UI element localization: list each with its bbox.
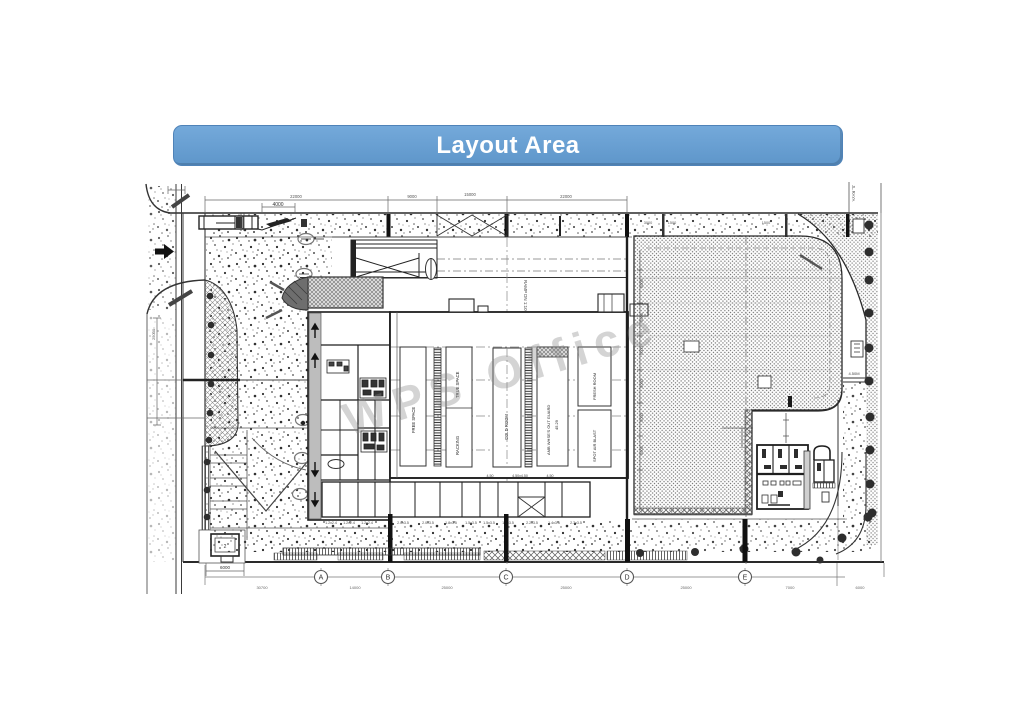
svg-text:25000: 25000 — [441, 585, 453, 590]
svg-text:4000: 4000 — [272, 202, 283, 208]
svg-text:9000: 9000 — [407, 194, 417, 199]
svg-text:2.0x3.5: 2.0x3.5 — [422, 521, 434, 525]
svg-text:SPOT AIR BLAST: SPOT AIR BLAST — [592, 429, 597, 462]
svg-text:1500: 1500 — [668, 221, 676, 225]
svg-text:6000: 6000 — [220, 565, 231, 570]
svg-text:25000: 25000 — [680, 585, 692, 590]
svg-text:22000: 22000 — [560, 194, 572, 199]
svg-text:4.50x4.50: 4.50x4.50 — [512, 474, 528, 478]
svg-text:5000: 5000 — [639, 412, 644, 422]
svg-text:6000: 6000 — [856, 585, 866, 590]
svg-text:4.50: 4.50 — [487, 474, 494, 478]
svg-text:2.0x3.5: 2.0x3.5 — [397, 521, 409, 525]
svg-text:RAMP DN 1:10: RAMP DN 1:10 — [523, 280, 528, 311]
svg-text:A: A — [319, 575, 324, 582]
svg-text:4.50M: 4.50M — [848, 371, 859, 376]
svg-text:JL.RAYA: JL.RAYA — [851, 185, 856, 202]
svg-text:AMB WHSE'S OUT GUARD: AMB WHSE'S OUT GUARD — [546, 405, 551, 455]
svg-text:14000: 14000 — [349, 585, 361, 590]
svg-text:30700: 30700 — [256, 585, 268, 590]
svg-text:45.29: 45.29 — [554, 419, 559, 430]
svg-text:5000: 5000 — [639, 445, 644, 455]
svg-text:E: E — [743, 575, 748, 582]
svg-text:1.2x2.4: 1.2x2.4 — [361, 521, 373, 525]
svg-text:22000: 22000 — [290, 194, 302, 199]
svg-text:1.2x2.4: 1.2x2.4 — [325, 521, 337, 525]
svg-text:1500: 1500 — [762, 221, 770, 225]
svg-text:B: B — [386, 575, 391, 582]
svg-text:25000: 25000 — [560, 585, 572, 590]
svg-text:1.4x3.5: 1.4x3.5 — [548, 521, 560, 525]
svg-text:RACKING: RACKING — [455, 436, 460, 455]
svg-text:1.5x3.5: 1.5x3.5 — [483, 521, 495, 525]
svg-text:D: D — [624, 575, 629, 582]
svg-text:15000: 15000 — [464, 192, 476, 197]
svg-text:FRESH ROOM: FRESH ROOM — [592, 373, 597, 400]
svg-text:5000: 5000 — [639, 378, 644, 388]
svg-text:7000: 7000 — [786, 585, 796, 590]
svg-text:5000: 5000 — [639, 278, 644, 288]
svg-text:25000: 25000 — [151, 328, 156, 340]
svg-text:4.50: 4.50 — [547, 474, 554, 478]
svg-text:C: C — [503, 575, 508, 582]
svg-text:1.5x3.5: 1.5x3.5 — [465, 521, 477, 525]
svg-text:3000: 3000 — [644, 221, 652, 225]
svg-text:COLD ROOM: COLD ROOM — [504, 414, 509, 440]
svg-text:1.2x2.4: 1.2x2.4 — [343, 521, 355, 525]
svg-text:1.8x3.5: 1.8x3.5 — [445, 521, 457, 525]
svg-text:2.3x3.5: 2.3x3.5 — [570, 521, 582, 525]
svg-text:2.2x3.5: 2.2x3.5 — [526, 521, 538, 525]
